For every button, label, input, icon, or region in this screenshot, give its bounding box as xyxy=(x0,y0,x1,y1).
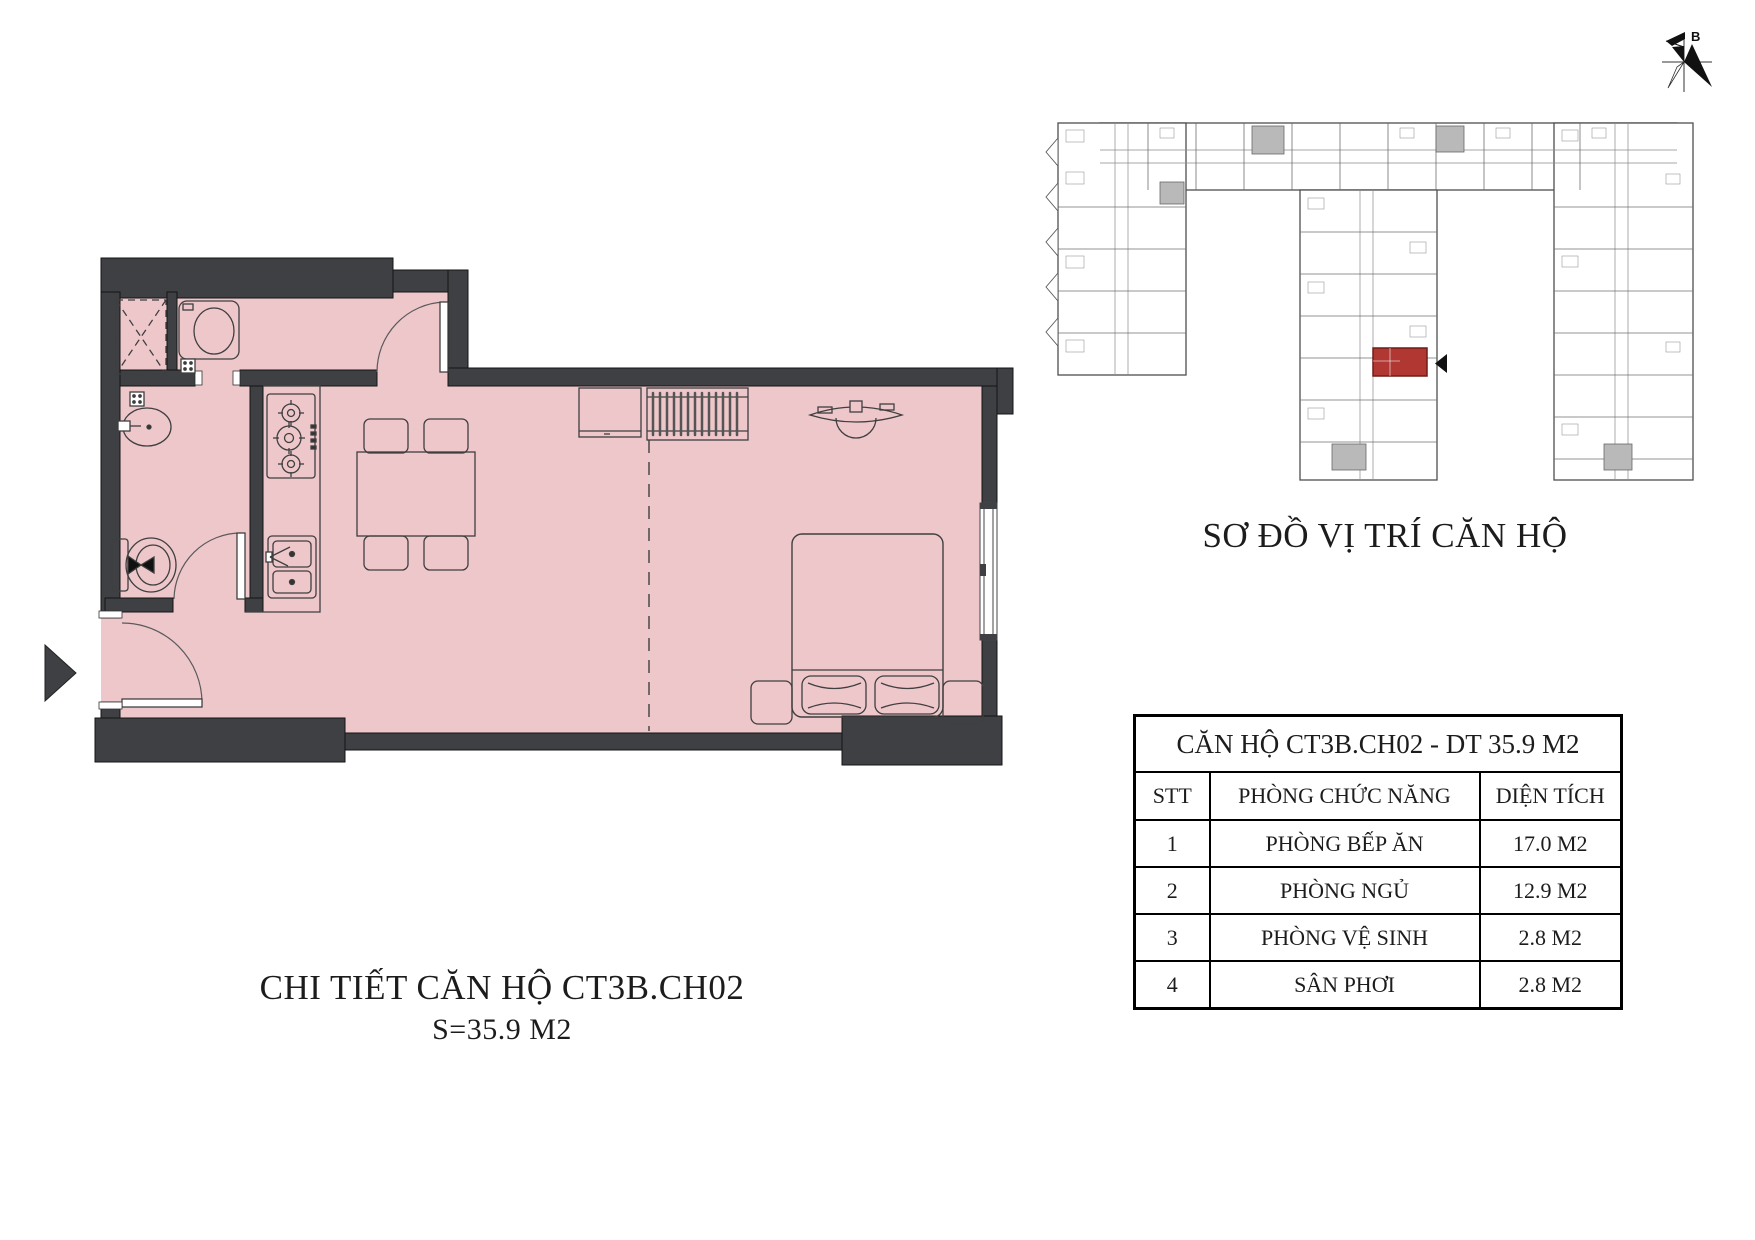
site-plan-title: SƠ ĐỒ VỊ TRÍ CĂN HỘ xyxy=(1085,516,1685,556)
cell-area: 17.0 M2 xyxy=(1480,820,1622,867)
entrance-door-leaf xyxy=(122,699,202,707)
col-header-room: PHÒNG CHỨC NĂNG xyxy=(1210,772,1480,820)
table-header-row: STT PHÒNG CHỨC NĂNG DIỆN TÍCH xyxy=(1135,772,1622,820)
site-mid-wing xyxy=(1300,190,1437,480)
cell-area: 2.8 M2 xyxy=(1480,961,1622,1009)
entrance-arrow-icon xyxy=(45,645,76,701)
col-header-stt: STT xyxy=(1135,772,1210,820)
floor-plan-title: CHI TIẾT CĂN HỘ CT3B.CH02 xyxy=(252,968,752,1008)
table-title: CĂN HỘ CT3B.CH02 - DT 35.9 M2 xyxy=(1135,716,1622,773)
door-sill xyxy=(99,702,122,709)
table-row: 1 PHÒNG BẾP ĂN 17.0 M2 xyxy=(1135,820,1622,867)
site-right-wing xyxy=(1554,123,1693,480)
floor-plan xyxy=(45,258,1013,765)
col-header-area: DIỆN TÍCH xyxy=(1480,772,1622,820)
unit-area-table: CĂN HỘ CT3B.CH02 - DT 35.9 M2 STT PHÒNG … xyxy=(1133,714,1623,1010)
cell-area: 12.9 M2 xyxy=(1480,867,1622,914)
cell-stt: 4 xyxy=(1135,961,1210,1009)
bathroom-door-leaf xyxy=(237,533,245,599)
cell-room: PHÒNG VỆ SINH xyxy=(1210,914,1480,961)
door-sill xyxy=(233,371,240,385)
table-row: 2 PHÒNG NGỦ 12.9 M2 xyxy=(1135,867,1622,914)
bedroom-window xyxy=(980,503,997,640)
cell-area: 2.8 M2 xyxy=(1480,914,1622,961)
cell-room: PHÒNG BẾP ĂN xyxy=(1210,820,1480,867)
north-arrow-icon: B xyxy=(1662,29,1712,92)
door-sill xyxy=(195,371,202,385)
table-title-row: CĂN HỘ CT3B.CH02 - DT 35.9 M2 xyxy=(1135,716,1622,773)
table-row: 3 PHÒNG VỆ SINH 2.8 M2 xyxy=(1135,914,1622,961)
table-row: 4 SÂN PHƠI 2.8 M2 xyxy=(1135,961,1622,1009)
cell-stt: 1 xyxy=(1135,820,1210,867)
door-sill xyxy=(99,611,122,618)
plan-drawing: B xyxy=(0,0,1755,1240)
balcony-door-leaf xyxy=(440,302,448,372)
north-label: B xyxy=(1691,29,1700,44)
floorplan-page: { "colors": { "floor": "#eec7cb", "wall"… xyxy=(0,0,1755,1240)
cell-room: SÂN PHƠI xyxy=(1210,961,1480,1009)
cell-room: PHÒNG NGỦ xyxy=(1210,867,1480,914)
floor-drain xyxy=(181,359,195,373)
highlighted-unit xyxy=(1373,348,1427,376)
cell-stt: 2 xyxy=(1135,867,1210,914)
site-plan xyxy=(1046,123,1693,480)
floor-plan-subtitle: S=35.9 M2 xyxy=(252,1013,752,1047)
cell-stt: 3 xyxy=(1135,914,1210,961)
floor-drain xyxy=(130,392,144,406)
